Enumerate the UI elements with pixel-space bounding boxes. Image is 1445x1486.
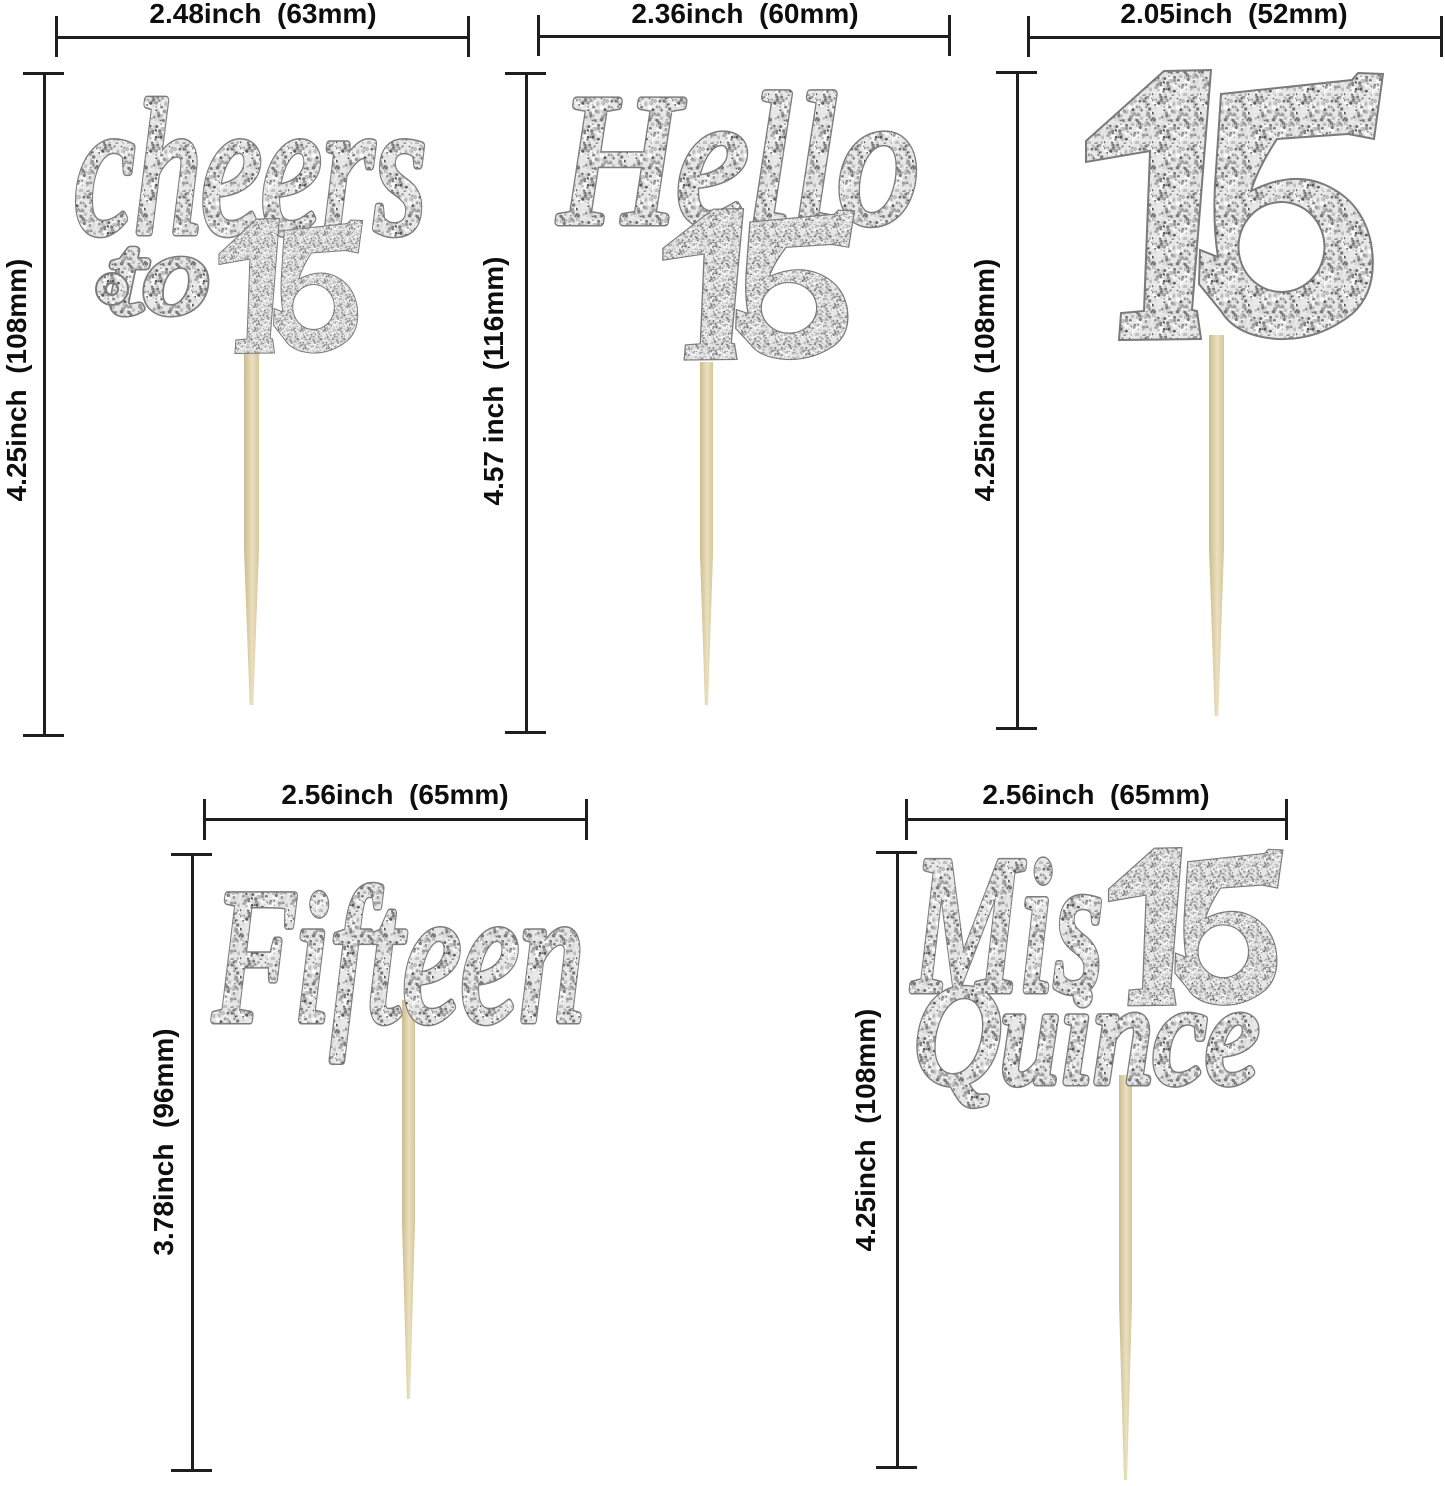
svg-text:to: to [108, 214, 208, 336]
svg-text:Fifteen: Fifteen [213, 852, 584, 1062]
